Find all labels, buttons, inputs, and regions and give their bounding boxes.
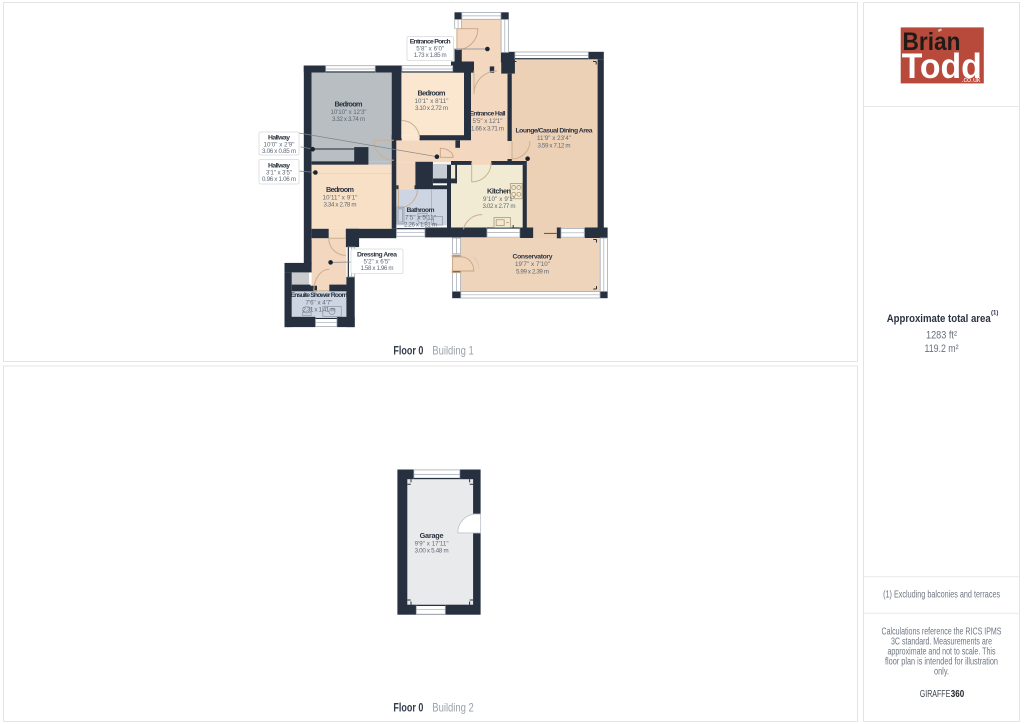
svg-text:Entrance Hall: Entrance Hall bbox=[470, 111, 506, 118]
svg-text:Bedroom: Bedroom bbox=[418, 89, 447, 98]
svg-text:Approximate total area: Approximate total area bbox=[887, 313, 992, 325]
svg-text:0.96 x 1.06 m: 0.96 x 1.06 m bbox=[262, 176, 296, 183]
svg-text:Floor 0: Floor 0 bbox=[393, 701, 423, 715]
svg-text:Garage: Garage bbox=[420, 531, 444, 540]
svg-text:Dressing Area: Dressing Area bbox=[357, 252, 397, 259]
svg-text:Floor 0: Floor 0 bbox=[393, 343, 423, 357]
svg-text:GIRAFFE: GIRAFFE bbox=[920, 689, 951, 700]
svg-text:Building 2: Building 2 bbox=[432, 701, 474, 715]
svg-text:Conservatory: Conservatory bbox=[513, 254, 553, 261]
svg-text:10'10" x 12'3": 10'10" x 12'3" bbox=[331, 109, 367, 116]
svg-text:9'10" x 9'1": 9'10" x 9'1" bbox=[483, 196, 515, 203]
svg-text:2.31 x 1.41 m: 2.31 x 1.41 m bbox=[303, 307, 336, 314]
svg-text:Kitchen: Kitchen bbox=[487, 187, 511, 196]
svg-text:Ensuite Shower Room: Ensuite Shower Room bbox=[291, 292, 348, 299]
svg-text:7'6" x 4'7": 7'6" x 4'7" bbox=[306, 300, 333, 307]
svg-text:5'5" x 12'1": 5'5" x 12'1" bbox=[473, 118, 503, 125]
svg-text:3.32 x 3.74 m: 3.32 x 3.74 m bbox=[332, 116, 365, 123]
svg-text:Bathroom: Bathroom bbox=[407, 207, 435, 214]
svg-text:Bedroom: Bedroom bbox=[335, 100, 364, 109]
svg-text:Lounge/Casual Dining Area: Lounge/Casual Dining Area bbox=[516, 128, 593, 135]
svg-text:3.00 x 5.48 m: 3.00 x 5.48 m bbox=[415, 548, 449, 555]
svg-text:11'9" x 23'4": 11'9" x 23'4" bbox=[537, 135, 571, 142]
svg-text:3.59 x 7.12 m: 3.59 x 7.12 m bbox=[538, 143, 571, 150]
svg-text:9'9" x 17'11": 9'9" x 17'11" bbox=[415, 541, 449, 548]
svg-text:7'5" x 5'11": 7'5" x 5'11" bbox=[405, 215, 436, 222]
svg-text:3.02 x 2.77 m: 3.02 x 2.77 m bbox=[483, 203, 516, 210]
svg-text:Building 1: Building 1 bbox=[432, 343, 474, 357]
svg-text:1.73 x 1.85 m: 1.73 x 1.85 m bbox=[414, 52, 447, 59]
svg-text:Hallway: Hallway bbox=[268, 163, 290, 170]
svg-text:(1): (1) bbox=[991, 311, 998, 317]
svg-text:(1) Excluding balconies and te: (1) Excluding balconies and terraces bbox=[883, 589, 1000, 600]
svg-text:5.99 x 2.39 m: 5.99 x 2.39 m bbox=[516, 269, 549, 276]
svg-text:.co.uk: .co.uk bbox=[962, 75, 981, 84]
svg-text:10'11" x 9'1": 10'11" x 9'1" bbox=[323, 195, 358, 202]
svg-text:3.34 x 2.78 m: 3.34 x 2.78 m bbox=[324, 202, 357, 209]
svg-text:3.06 x 0.85 m: 3.06 x 0.85 m bbox=[262, 148, 296, 155]
svg-text:1283 ft²: 1283 ft² bbox=[926, 329, 957, 341]
svg-text:Bedroom: Bedroom bbox=[326, 185, 355, 194]
svg-text:119.2 m²: 119.2 m² bbox=[925, 343, 959, 355]
svg-text:1.66 x 3.71 m: 1.66 x 3.71 m bbox=[471, 126, 504, 133]
svg-text:Hallway: Hallway bbox=[268, 135, 290, 142]
svg-text:only.: only. bbox=[934, 667, 949, 678]
svg-text:19'7" x 7'10": 19'7" x 7'10" bbox=[515, 261, 550, 268]
svg-text:1.58 x 1.96 m: 1.58 x 1.96 m bbox=[361, 265, 394, 272]
svg-text:360: 360 bbox=[951, 689, 965, 700]
svg-text:2.26 x 1.81 m: 2.26 x 1.81 m bbox=[404, 222, 437, 229]
svg-text:3.10 x 2.72 m: 3.10 x 2.72 m bbox=[415, 105, 448, 112]
svg-text:10'1" x 8'11": 10'1" x 8'11" bbox=[415, 98, 449, 105]
